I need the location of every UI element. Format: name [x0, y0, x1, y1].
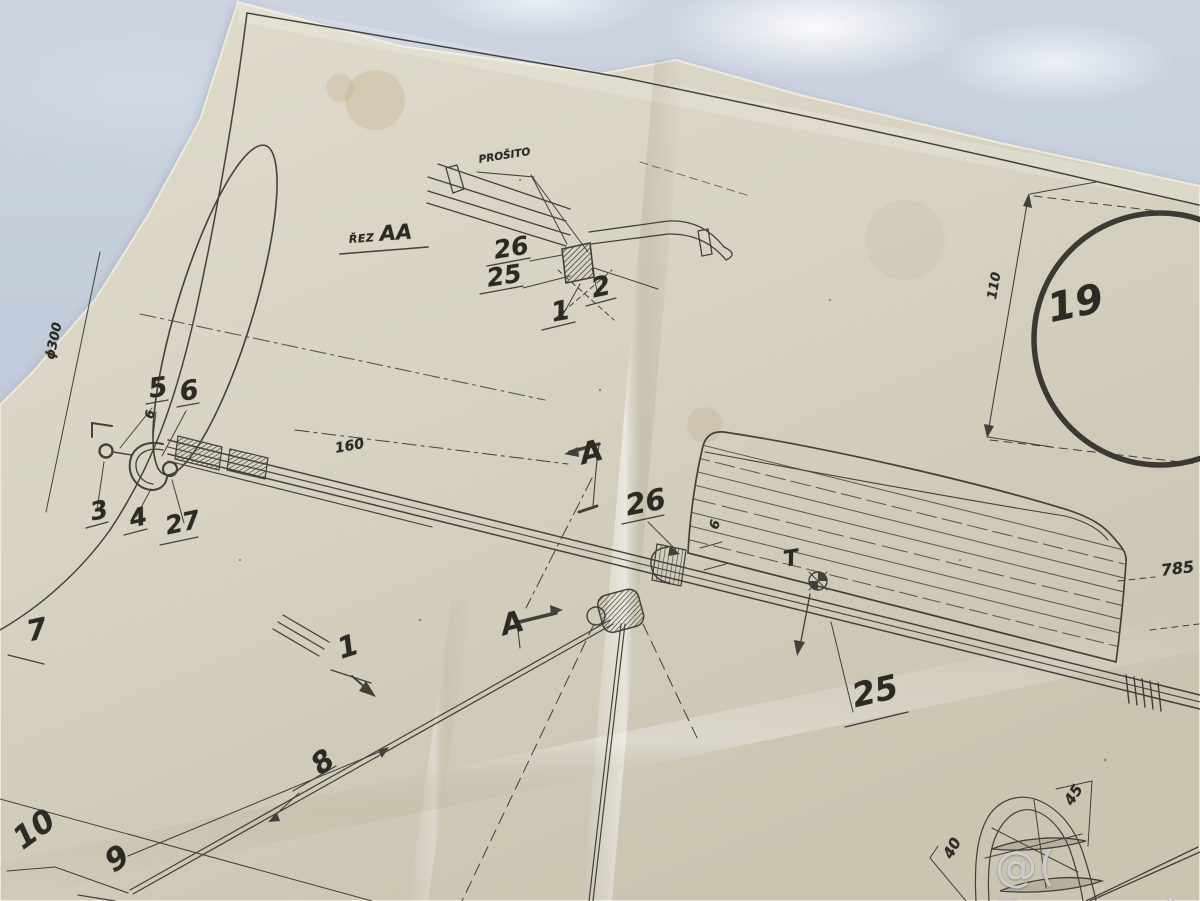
callout-26-mid: 26 [623, 484, 668, 520]
section-title: ŘEZ AA [348, 222, 413, 247]
callout-5: 5 [147, 373, 169, 402]
callout-27: 27 [163, 507, 202, 539]
watermark-bazos: @( Bazos.sk [995, 842, 1200, 901]
section-name: AA [379, 220, 413, 246]
callout-25-bottom: 25 [849, 670, 901, 712]
callout-26-top: 26 [492, 233, 530, 263]
callout-19: 19 [1044, 278, 1107, 329]
dim-785: 785 [1160, 559, 1195, 579]
callout-6: 6 [178, 376, 200, 405]
photo-of-model-plan: ŘEZ AA PROŠITO 26 25 2 1 5 6 6 3 4 27 16… [0, 0, 1200, 901]
section-prefix: ŘEZ [348, 231, 374, 246]
callout-25-top: 25 [485, 261, 523, 291]
